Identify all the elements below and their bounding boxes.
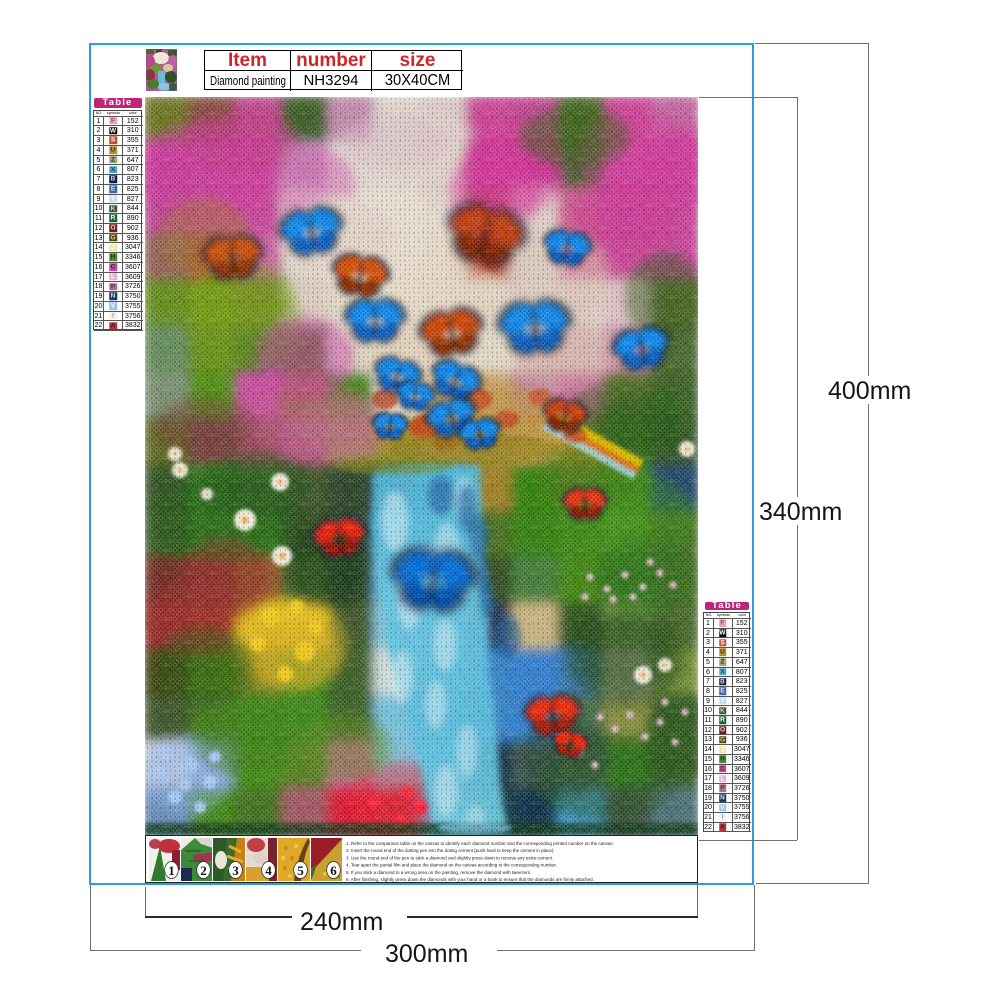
- svg-text:2: 2: [200, 863, 207, 878]
- svg-text:5: 5: [297, 863, 304, 878]
- svg-text:3: 3: [233, 863, 240, 878]
- svg-text:6: 6: [330, 863, 337, 878]
- svg-text:1: 1: [168, 863, 175, 878]
- svg-text:4: 4: [265, 863, 272, 878]
